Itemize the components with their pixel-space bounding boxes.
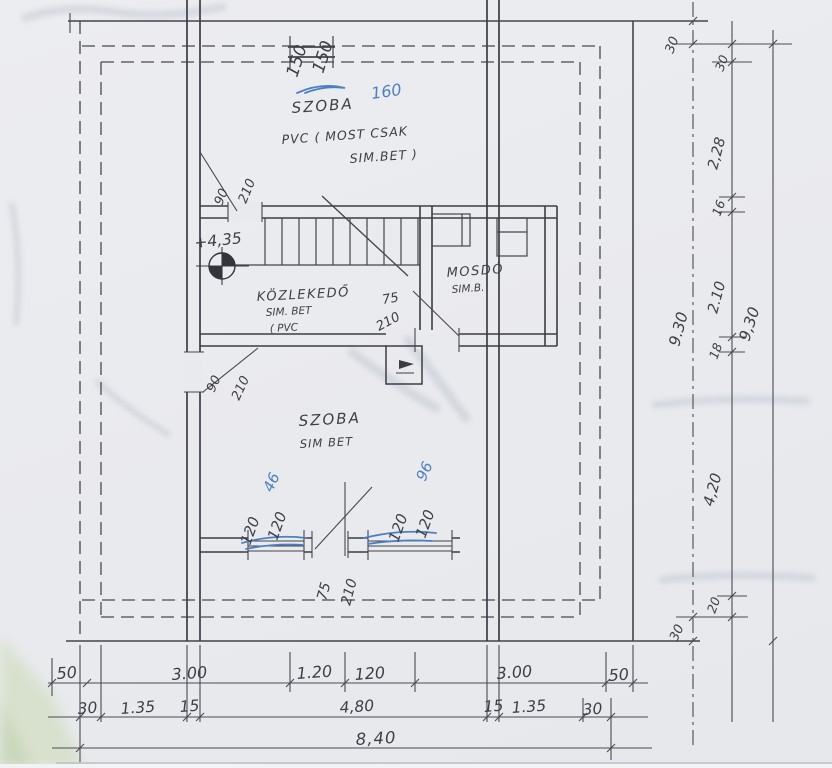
dim-right-mid-1: 2,28 bbox=[705, 136, 729, 171]
level-mark-label: +4,35 bbox=[194, 229, 243, 252]
window-top-height-label: 150 bbox=[309, 38, 338, 75]
dim-right-mid-4: 18 bbox=[706, 341, 726, 361]
dim-row1-1: 3.00 bbox=[171, 663, 208, 684]
level-marker bbox=[196, 247, 249, 285]
door-bottom-height-label: 210 bbox=[338, 577, 360, 607]
dim-row1-2: 1.20 bbox=[296, 662, 333, 683]
floor-plan-drawing: 150 150 160 SZOBA PVC ( MOST CSAK SIM.BE… bbox=[0, 0, 832, 768]
paper-bottom-edge bbox=[0, 763, 832, 768]
ink-note-bottom-right: 96 bbox=[412, 459, 436, 484]
dim-right-mid-0: 30 bbox=[712, 53, 732, 73]
dim-row2-6: 30 bbox=[582, 700, 603, 719]
window-top-width-label: 150 bbox=[283, 42, 312, 79]
room-bottom-note1: SIM BET bbox=[299, 434, 353, 451]
washroom-note1: SIM.B. bbox=[451, 282, 484, 296]
dim-right-total: 9,30 bbox=[736, 305, 764, 344]
door-mid-left-height-label: 210 bbox=[229, 374, 253, 403]
door-corridor-width-label: 75 bbox=[381, 290, 400, 308]
room-bottom-name: SZOBA bbox=[298, 409, 361, 430]
room-top-note2: SIM.BET ) bbox=[349, 146, 418, 166]
door-top-left-height-label: 210 bbox=[236, 177, 259, 206]
corridor-note1: SIM. BET bbox=[266, 305, 314, 319]
dim-row1-4: 3.00 bbox=[496, 662, 533, 683]
dim-total-width: 8,40 bbox=[355, 728, 397, 749]
dim-row2-2: 15 bbox=[179, 697, 200, 716]
dim-row2-4: 15 bbox=[483, 697, 504, 716]
room-top-note1: PVC ( MOST CSAK bbox=[281, 123, 409, 147]
dim-right-mid-5: 4,20 bbox=[699, 471, 725, 508]
washroom-fixtures bbox=[432, 214, 527, 256]
dim-right-inner-top: 30 bbox=[663, 35, 683, 56]
dim-row2-5: 1.35 bbox=[511, 697, 547, 717]
door-bottom-width-label: 75 bbox=[314, 581, 334, 602]
dim-right-inner-mid: 9.30 bbox=[665, 310, 691, 348]
right-dimension-lines bbox=[672, 2, 792, 748]
corridor-note2: ( PVC bbox=[270, 321, 300, 334]
room-top-name: SZOBA bbox=[291, 95, 354, 117]
dim-row1-0: 50 bbox=[56, 663, 78, 683]
dim-row1-5: 50 bbox=[608, 665, 630, 685]
dim-row2-1: 1.35 bbox=[120, 698, 156, 718]
dim-right-mid-6: 20 bbox=[704, 595, 724, 615]
dim-row2-3: 4,80 bbox=[339, 697, 375, 717]
bleed-through-artifacts bbox=[12, 7, 812, 580]
corridor-name: KÖZLEKEDŐ bbox=[256, 283, 350, 305]
interior-walls bbox=[200, 206, 557, 552]
dim-right-mid-3: 2.10 bbox=[705, 280, 729, 315]
dim-right-mid-2: 16 bbox=[709, 198, 729, 218]
ink-note-top: 160 bbox=[370, 80, 403, 103]
dim-row1-3: 120 bbox=[354, 663, 386, 684]
scanned-floor-plan: 150 150 160 SZOBA PVC ( MOST CSAK SIM.BE… bbox=[0, 0, 832, 768]
door-corridor-height-label: 210 bbox=[374, 310, 403, 335]
ink-note-bottom-left: 46 bbox=[259, 470, 283, 495]
dim-row2-0: 30 bbox=[77, 699, 98, 718]
washroom-name: MOSDÓ bbox=[446, 261, 504, 281]
